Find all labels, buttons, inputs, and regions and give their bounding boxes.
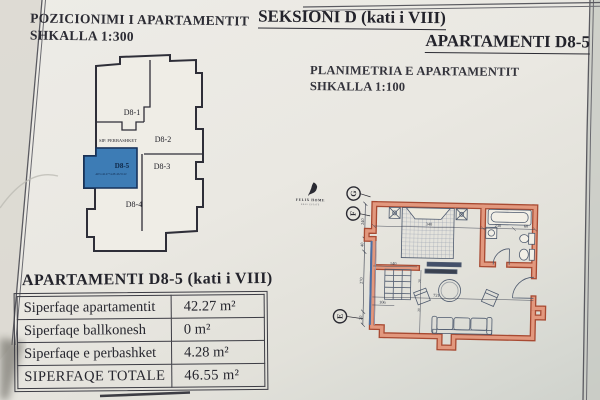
sofa-arm-right [487,317,492,334]
plan-scale: SHKALLA 1:100 [310,78,519,96]
entry-door-arc [512,277,533,298]
apartment-title: APARTAMENTI D8-5 [425,31,590,54]
row-label: Siperfaqe ballkonesh [17,318,171,342]
row-label: Siperfaqe e perbashket [18,341,172,365]
dim-small-20b: 20 [417,308,421,312]
toilet [519,249,528,260]
floor-plan: FELIX HOME REAL ESTATE G F E 240 40 270 … [283,175,562,366]
tv-cabinet [425,269,457,274]
position-diagram: D8-1 D8-2 SIP. PERBASHKET D8-5 AP.5=42.2… [70,50,240,255]
walls-fill [364,204,545,350]
cutoff-line-bottom [100,393,190,397]
walls-edge [364,204,545,350]
unit-d8-5-area-note: AP.5=42.27+4.28=46.55 m² [95,173,126,176]
washing-machine [486,227,497,238]
sink-counter [529,233,535,244]
dim-living-721: 721 [433,293,440,298]
dim-wardrobe-140: 140 [390,261,397,266]
position-header: POZICIONIMI I APARTAMENTIT SHKALLA 1:300 [30,9,250,46]
grid-marker-f: F [349,211,358,216]
dim-top-340: 340 [426,222,433,227]
row-value: 4.28 m² [171,340,264,364]
toilet-tank [529,249,534,260]
logo-name: FELIX HOME [296,198,325,203]
dim-balcony-106: 106 [379,300,386,305]
plan-subheader: PLANIMETRIA E APARTAMENTIT SHKALLA 1:100 [310,62,519,96]
armchair-left [414,288,431,305]
unit-label-d8-4: D8-4 [126,200,142,209]
row-label: Siperfaqe apartamentit [17,295,171,319]
unit-label-d8-5: D8-5 [115,162,130,170]
logo-subtitle: REAL ESTATE [301,203,320,206]
dim-top-230: 230 [495,223,502,228]
section-title: SEKSIONI D (kati i VIII) [258,7,446,31]
dim-left-40: 40 [359,242,364,247]
area-summary-table: Siperfaqe apartamentit 42.27 m² Siperfaq… [14,291,269,392]
dim-small-20a: 20 [418,279,422,283]
living-furniture [384,268,499,334]
document-photo: POZICIONIMI I APARTAMENTIT SHKALLA 1:300… [0,0,600,400]
armchair-right [481,289,498,306]
row-value: 0 m² [171,317,264,341]
sofa-seat-2 [454,318,470,330]
row-label: SIPERFAQE TOTALE [18,364,172,388]
bedroom-furniture [388,207,467,267]
grid-marker-e: E [335,314,344,320]
unit-label-d8-2: D8-2 [155,135,171,144]
plan-title: PLANIMETRIA E APARTAMENTIT [310,62,519,80]
unit-label-d8-1: D8-1 [124,108,140,117]
table-row-total: SIPERFAQE TOTALE 46.55 m² [18,363,265,388]
bedroom-dresser [427,262,461,267]
table-row: Siperfaqe apartamentit 42.27 m² [17,294,264,319]
sink [520,235,529,243]
dim-left-20: 20 [358,315,363,320]
page-edge-line-top [303,3,600,8]
table-row: Siperfaqe e perbashket 4.28 m² [18,340,265,365]
grid-marker-g: G [349,190,358,196]
table-row: Siperfaqe ballkonesh 0 m² [17,317,264,342]
dim-left-270: 270 [359,277,364,284]
sofa-seat-3 [471,318,487,330]
position-scale: SHKALLA 1:300 [30,26,249,46]
common-area-label: SIP. PERBASHKET [99,138,137,143]
felix-home-logo-icon [309,183,317,196]
felix-home-logo: FELIX HOME REAL ESTATE [296,182,326,206]
row-value: 46.55 m² [172,363,265,387]
section-header: SEKSIONI D (kati i VIII) APARTAMENTI D8-… [258,7,590,55]
bathroom-fixtures [485,209,535,260]
wardrobe [384,269,411,300]
dim-left-240: 240 [360,218,365,225]
sofa-seat-1 [437,317,453,329]
row-value: 42.27 m² [171,294,264,318]
summary-title: APARTAMENTI D8-5 (kati i VIII) [22,270,273,290]
unit-label-d8-3: D8-3 [154,162,170,171]
